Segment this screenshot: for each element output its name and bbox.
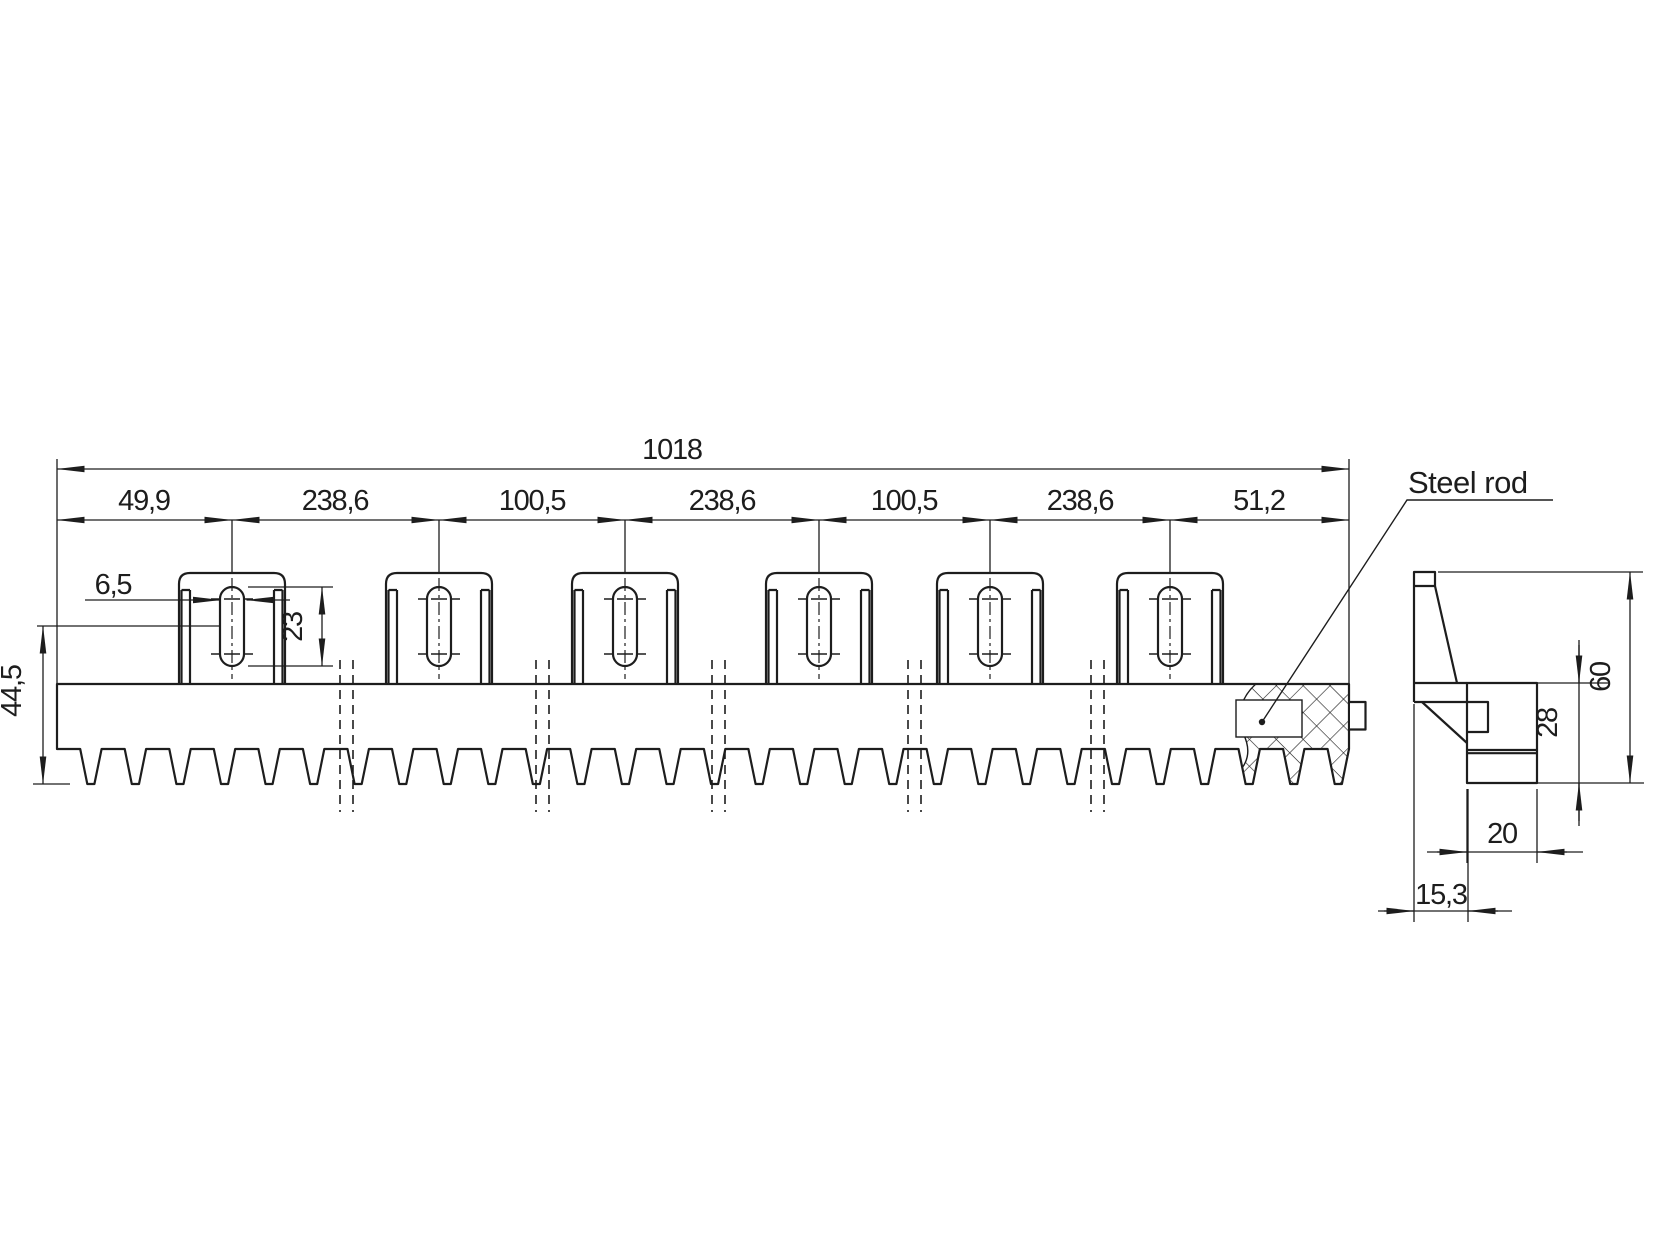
chain-dim-3: 100,5 <box>499 485 566 517</box>
side-view-outline <box>1414 572 1537 783</box>
side-height-value: 60 <box>1585 662 1617 692</box>
dimension-overall-length: 1018 <box>57 434 1349 683</box>
dimension-slot-length: 23 <box>248 587 333 666</box>
tooth-root-lines <box>1467 750 1537 753</box>
steel-rod-section <box>1236 700 1302 737</box>
rack-outline <box>57 684 1349 784</box>
chain-dim-6: 238,6 <box>1047 485 1114 517</box>
break-mark-4 <box>908 660 921 812</box>
dimension-chain: 49,9 238,6 100,5 238,6 100,5 238,6 51,2 <box>57 485 1349 520</box>
chain-dim-1: 49,9 <box>118 485 170 517</box>
chain-dim-7: 51,2 <box>1233 485 1285 517</box>
dimension-flange-offset: 15,3 <box>1378 704 1512 922</box>
gear-rack-technical-drawing: 1018 49,9 238,6 100,5 238,6 100,5 238,6 … <box>0 0 1680 1260</box>
rod-end-mask <box>1350 703 1365 729</box>
break-mark-5 <box>1091 660 1104 812</box>
mounting-bracket-1 <box>179 520 285 683</box>
mounting-bracket-3 <box>572 520 678 683</box>
break-mark-2 <box>536 660 549 812</box>
chain-dim-5: 100,5 <box>871 485 938 517</box>
dimension-body-width: 20 <box>1427 789 1583 863</box>
break-mark-1 <box>340 660 353 812</box>
overall-length-value: 1018 <box>642 434 702 466</box>
break-mark-3 <box>712 660 725 812</box>
side-view: 60 28 20 15,3 <box>1378 572 1644 922</box>
dimension-rack-height: 44,5 <box>0 626 220 784</box>
flange-offset-value: 15,3 <box>1415 879 1467 911</box>
mounting-bracket-5 <box>937 520 1043 683</box>
steel-rod-label: Steel rod <box>1408 465 1528 500</box>
mounting-bracket-4 <box>766 520 872 683</box>
dimension-side-height: 60 <box>1438 572 1644 783</box>
rack-height-value: 44,5 <box>0 665 28 717</box>
front-view: 1018 49,9 238,6 100,5 238,6 100,5 238,6 … <box>0 434 1553 812</box>
chain-dim-2: 238,6 <box>302 485 369 517</box>
slot-length-value: 23 <box>277 612 309 642</box>
mounting-bracket-6 <box>1117 520 1223 683</box>
body-width-value: 20 <box>1487 818 1517 850</box>
rod-end-side <box>1468 702 1488 732</box>
mounting-bracket-2 <box>386 520 492 683</box>
chain-dim-4: 238,6 <box>689 485 756 517</box>
slot-width-value: 6,5 <box>95 569 132 601</box>
body-height-value: 28 <box>1532 708 1564 738</box>
technical-drawing-page: 1018 49,9 238,6 100,5 238,6 100,5 238,6 … <box>0 0 1680 1260</box>
